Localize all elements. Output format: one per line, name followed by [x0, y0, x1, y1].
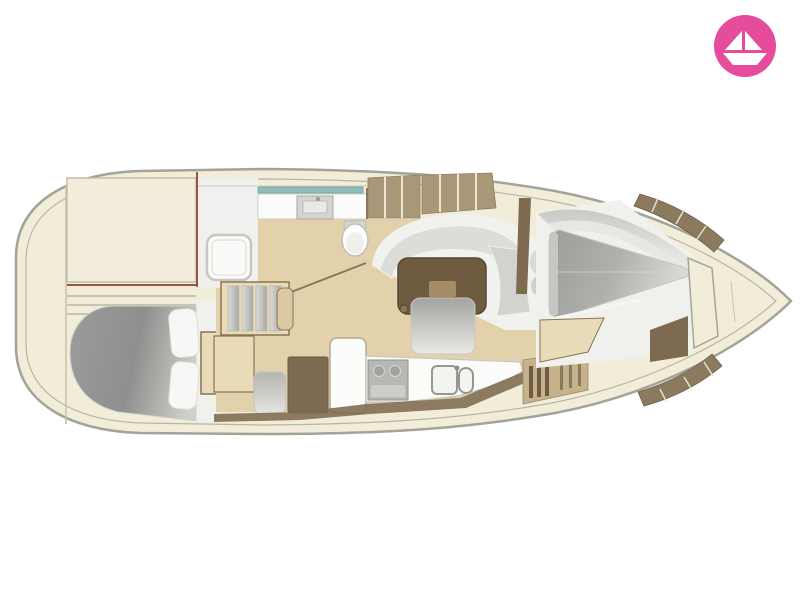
side-locker-band — [368, 175, 420, 218]
nav-seat — [254, 372, 286, 414]
burner — [390, 366, 401, 377]
galley-sink-small — [459, 368, 473, 393]
burner — [374, 366, 385, 377]
page — [0, 0, 800, 600]
step-box — [214, 336, 254, 392]
vent-slat — [545, 364, 549, 396]
boat-floor-plan — [0, 0, 800, 600]
faucet — [316, 197, 320, 201]
fridge-unit — [330, 338, 366, 413]
oven-front — [371, 385, 405, 397]
nav-table — [288, 357, 328, 413]
stern-locker-panel — [67, 178, 196, 282]
brand-logo[interactable] — [714, 15, 776, 77]
galley-faucet — [455, 366, 460, 371]
galley-sink-large — [432, 366, 457, 394]
companionway-steps — [228, 286, 239, 331]
salon-bench — [411, 298, 475, 354]
companionway-end — [277, 288, 293, 330]
vent-slat — [529, 366, 533, 398]
vanity-sink-basin — [303, 201, 327, 213]
toilet-bowl — [346, 232, 364, 254]
companionway-steps — [256, 286, 267, 331]
window-strip — [258, 187, 363, 193]
vent-slat — [537, 365, 541, 397]
companionway-steps — [242, 286, 253, 331]
v-berth-pillow-band — [549, 232, 558, 316]
pillow — [168, 308, 200, 358]
table-leg — [400, 305, 408, 313]
table-inlay — [429, 281, 456, 297]
pillow — [168, 361, 200, 410]
